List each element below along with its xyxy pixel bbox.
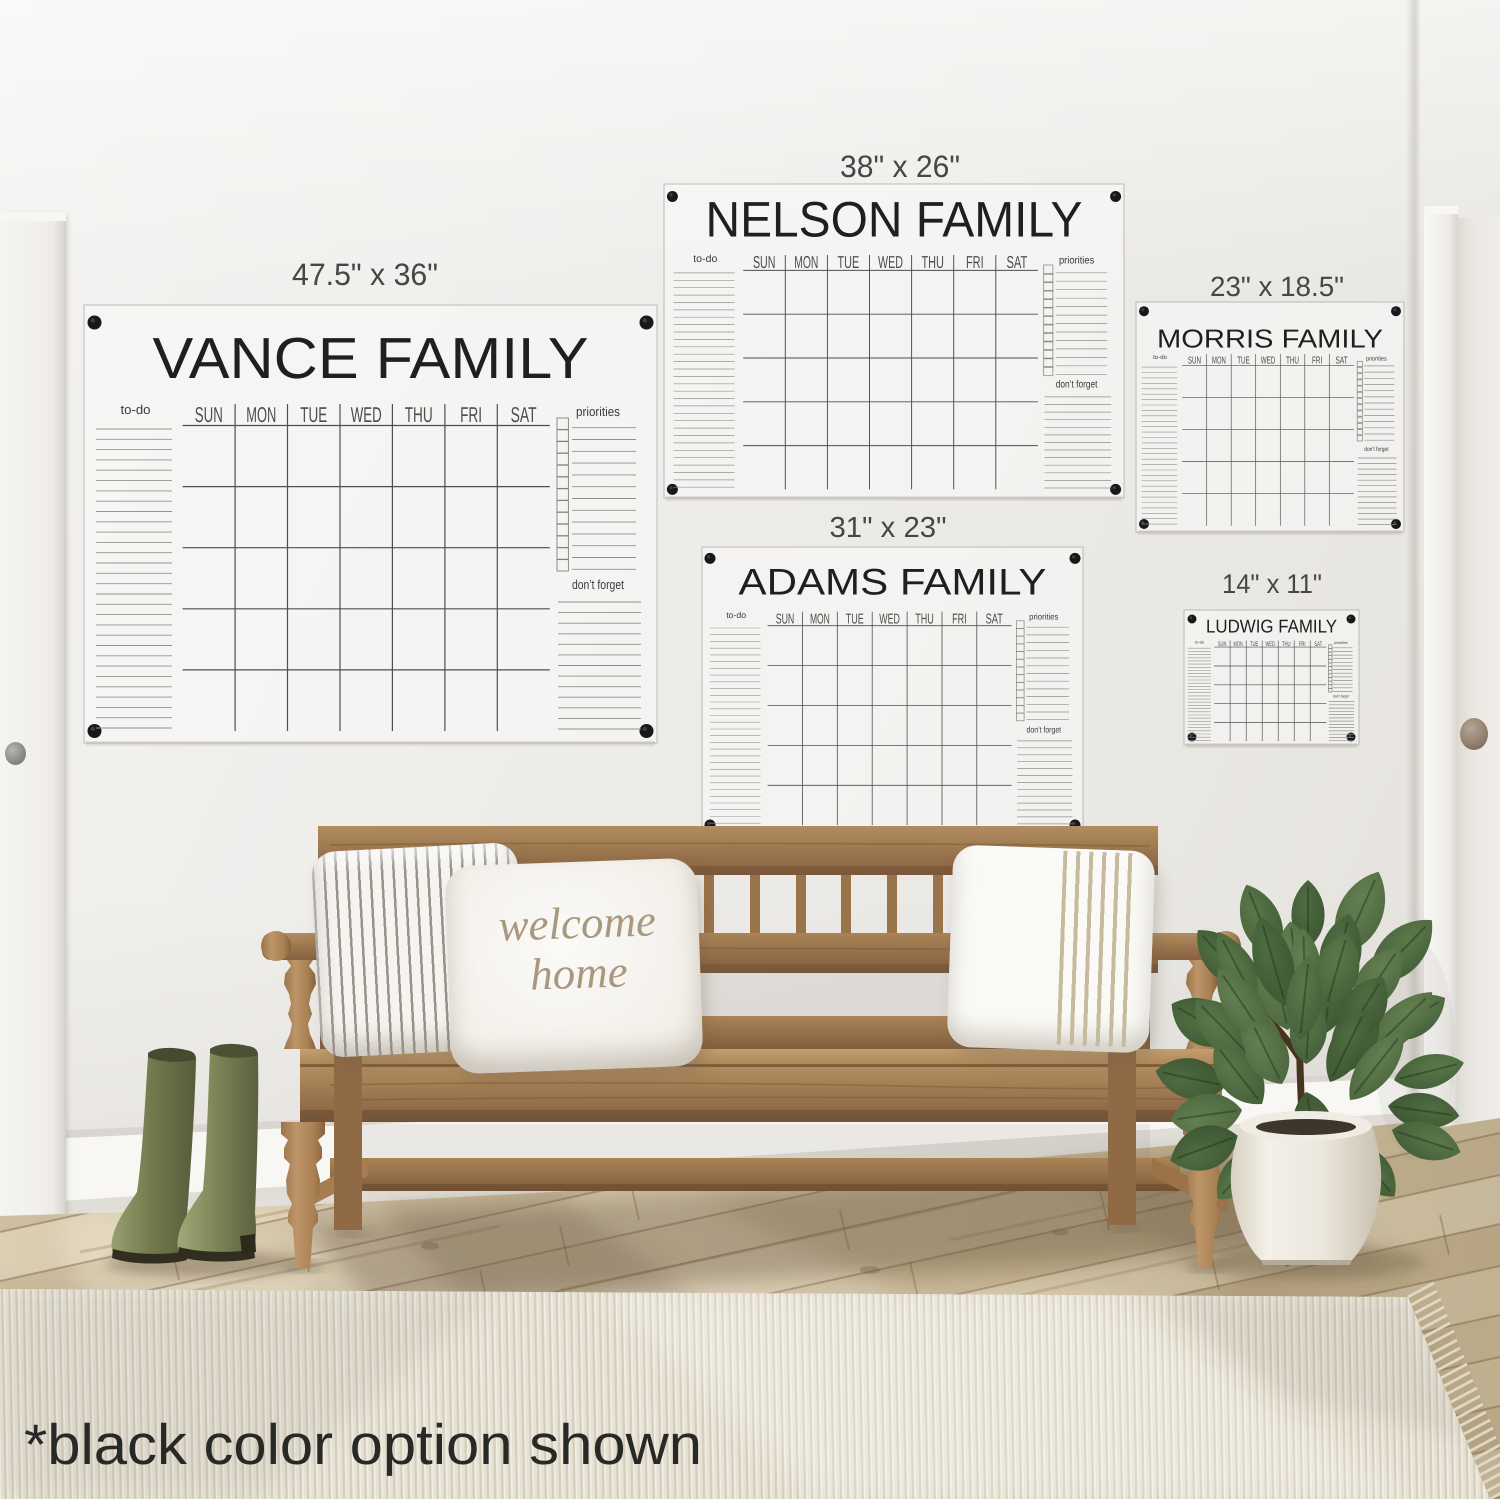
svg-text:WED: WED <box>1261 355 1276 366</box>
svg-text:SAT: SAT <box>511 403 537 427</box>
svg-text:SUN: SUN <box>1188 355 1201 366</box>
svg-text:NELSON FAMILY: NELSON FAMILY <box>706 191 1083 247</box>
svg-text:to-do: to-do <box>121 402 151 417</box>
svg-text:priorities: priorities <box>1059 256 1094 267</box>
svg-text:to-do: to-do <box>1153 354 1168 361</box>
svg-text:TUE: TUE <box>300 403 327 427</box>
svg-text:to-do: to-do <box>1195 640 1205 645</box>
svg-text:MON: MON <box>246 403 276 427</box>
svg-text:WED: WED <box>879 611 900 627</box>
svg-text:to-do: to-do <box>693 254 717 265</box>
svg-text:ADAMS FAMILY: ADAMS FAMILY <box>739 562 1047 603</box>
svg-text:THU: THU <box>915 611 934 627</box>
svg-text:MORRIS FAMILY: MORRIS FAMILY <box>1157 323 1383 353</box>
svg-text:priorities: priorities <box>576 404 620 419</box>
svg-text:don’t forget: don’t forget <box>572 577 624 592</box>
svg-text:THU: THU <box>1286 355 1299 366</box>
svg-text:TUE: TUE <box>838 252 860 272</box>
svg-text:priorities: priorities <box>1029 612 1058 622</box>
svg-text:WED: WED <box>351 403 382 427</box>
svg-text:MON: MON <box>1212 355 1226 366</box>
svg-text:SUN: SUN <box>776 611 795 627</box>
svg-text:don’t forget: don’t forget <box>1027 724 1062 734</box>
svg-text:don’t forget: don’t forget <box>1333 694 1350 699</box>
svg-text:SAT: SAT <box>1006 252 1027 272</box>
svg-text:don’t forget: don’t forget <box>1364 446 1389 453</box>
svg-text:LUDWIG FAMILY: LUDWIG FAMILY <box>1206 616 1337 637</box>
svg-text:47.5" x 36": 47.5" x 36" <box>292 257 438 292</box>
svg-text:31" x 23": 31" x 23" <box>830 512 947 544</box>
svg-text:14" x 11": 14" x 11" <box>1222 569 1322 599</box>
svg-text:38" x 26": 38" x 26" <box>840 149 960 184</box>
svg-text:THU: THU <box>405 403 433 427</box>
svg-text:SAT: SAT <box>1336 355 1348 366</box>
svg-text:TUE: TUE <box>846 611 864 627</box>
svg-text:WED: WED <box>878 252 903 272</box>
svg-text:FRI: FRI <box>1312 355 1322 366</box>
svg-text:MON: MON <box>810 611 830 627</box>
svg-text:23" x 18.5": 23" x 18.5" <box>1210 271 1344 302</box>
svg-text:priorities: priorities <box>1334 640 1347 645</box>
svg-text:MON: MON <box>794 252 818 272</box>
svg-text:TUE: TUE <box>1237 355 1250 366</box>
svg-text:SAT: SAT <box>986 611 1003 627</box>
svg-text:VANCE FAMILY: VANCE FAMILY <box>153 326 589 391</box>
svg-text:FRI: FRI <box>952 611 967 627</box>
svg-text:FRI: FRI <box>460 403 482 427</box>
svg-text:FRI: FRI <box>966 252 984 272</box>
svg-text:priorities: priorities <box>1366 355 1387 362</box>
svg-text:SUN: SUN <box>753 252 776 272</box>
svg-text:THU: THU <box>921 252 944 272</box>
svg-text:SUN: SUN <box>195 403 223 427</box>
svg-text:to-do: to-do <box>726 610 746 620</box>
svg-text:don’t forget: don’t forget <box>1056 380 1098 391</box>
svg-text:*black color option shown: *black color option shown <box>24 1413 702 1477</box>
